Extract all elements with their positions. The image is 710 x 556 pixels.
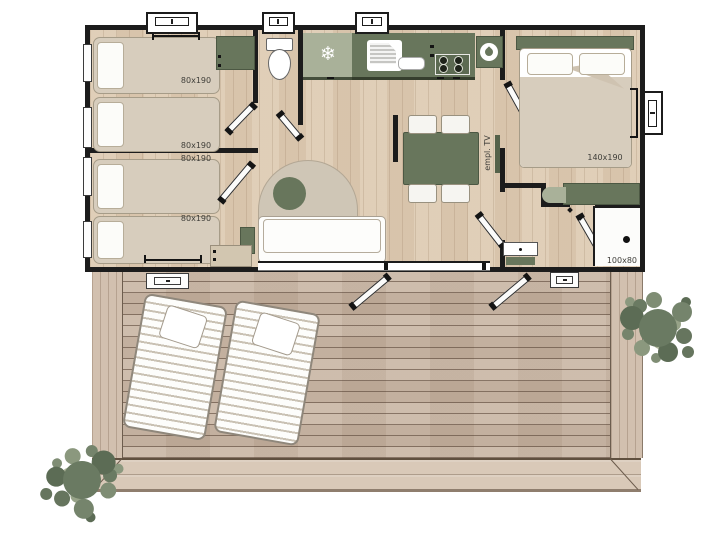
- dresser: [563, 183, 640, 205]
- double-bed: [519, 48, 632, 168]
- tv: [495, 135, 500, 173]
- dining-chair: [441, 184, 470, 203]
- bed-size-label: 80x190: [175, 154, 217, 164]
- window-left-slot: [83, 157, 92, 196]
- bed-size-label: 80x190: [175, 141, 217, 151]
- cooktop: [435, 54, 470, 75]
- dining-chair: [408, 184, 437, 203]
- bath-mat: [506, 257, 535, 265]
- water-drop-icon: [480, 43, 498, 61]
- door-leaf: [218, 161, 255, 203]
- interior-wall: [393, 115, 398, 162]
- bed-pillow: [579, 53, 625, 75]
- bay-door-band: [258, 261, 490, 271]
- washbasin: [503, 242, 538, 256]
- deck-edge-shadow: [92, 489, 641, 492]
- sofa-cushion: [263, 219, 381, 253]
- deck-fascia: [92, 458, 641, 489]
- window: [643, 91, 663, 135]
- lounger-pillow: [158, 304, 208, 349]
- water-heater: [476, 36, 503, 68]
- toilet: [268, 49, 291, 80]
- door-leaf: [225, 102, 256, 134]
- dining-chair: [441, 115, 470, 134]
- door-leaf: [475, 212, 506, 249]
- house-outline: 80x190 80x190 80x190 80x190: [85, 25, 645, 272]
- bed-size-label: 80x190: [175, 214, 217, 224]
- bed-size-label: 80x190: [175, 76, 217, 86]
- window-handle-icon: [166, 280, 170, 282]
- kitchen-sink: [367, 40, 402, 71]
- window-handle-icon: [563, 279, 567, 281]
- window: [146, 12, 198, 34]
- dresser-end: [542, 187, 566, 203]
- dining-chair: [408, 115, 437, 134]
- bed-pillow: [97, 164, 124, 209]
- bed-pillow: [97, 42, 124, 89]
- tree: [608, 278, 708, 378]
- single-bed: [93, 159, 220, 214]
- deck-window: [146, 273, 189, 289]
- lounger-pillow: [251, 311, 301, 356]
- bed-pillow: [97, 102, 124, 147]
- window-left-slot: [83, 107, 92, 148]
- bed-size-label: 140x190: [575, 153, 635, 163]
- bed-pillow: [527, 53, 573, 75]
- drainboard: [370, 43, 396, 64]
- dining-table: [403, 132, 479, 185]
- wardrobe: [216, 36, 255, 70]
- window: [355, 12, 389, 34]
- interior-wall: [503, 183, 546, 188]
- shower-size-label: 100x80: [593, 256, 637, 266]
- wardrobe: [210, 245, 252, 267]
- tv-location-label: empl. TV: [483, 128, 493, 178]
- bed-pillow: [97, 221, 124, 259]
- deck-window: [550, 272, 579, 288]
- deck: [92, 271, 641, 492]
- floorplan-canvas: 80x190 80x190 80x190 80x190: [0, 0, 710, 556]
- window-left-slot: [83, 44, 92, 82]
- window: [262, 12, 295, 34]
- sink-basin: [398, 57, 425, 70]
- window-left-slot: [83, 221, 92, 258]
- shower-drain: [623, 236, 630, 243]
- sofa: [258, 216, 386, 263]
- fridge-snowflake-icon: ❄: [314, 40, 342, 68]
- pouf: [273, 177, 306, 210]
